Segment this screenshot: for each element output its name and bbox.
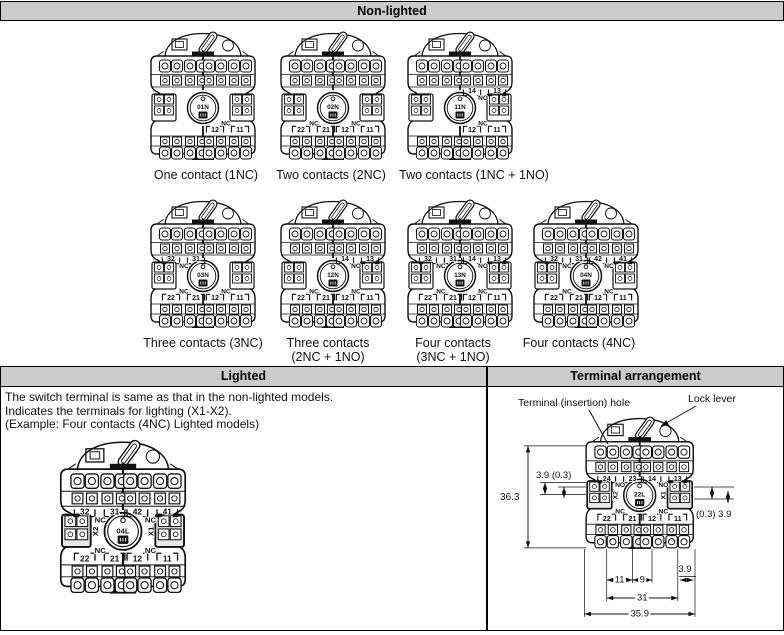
svg-text:23: 23	[628, 474, 636, 483]
caption-line: Four contacts (4NC)	[484, 337, 674, 351]
svg-text:12: 12	[133, 553, 143, 563]
svg-text:21: 21	[110, 553, 120, 563]
svg-text:NC: NC	[562, 289, 572, 296]
switch-figure-13N: 13N32311413NCNO22211211NCNC	[404, 198, 516, 330]
svg-text:NC: NC	[604, 263, 614, 270]
svg-text:11: 11	[493, 127, 501, 134]
svg-text:11: 11	[493, 295, 501, 302]
datasheet-page: Non-lighted 01N1211NCOne contact (1NC)02…	[0, 0, 784, 635]
svg-text:13: 13	[366, 256, 374, 263]
svg-text:12: 12	[468, 127, 476, 134]
switch-diagram-13N: 13N32311413NCNO22211211NCNC	[404, 198, 516, 330]
svg-text:NC: NC	[478, 289, 488, 296]
figure-caption-04N: Four contacts (4NC)	[484, 337, 674, 351]
svg-text:NC: NC	[221, 289, 231, 296]
svg-text:32: 32	[167, 256, 175, 263]
lighted-figure: X2X104L32314241NCNC22211211NCNC	[56, 438, 190, 601]
switch-figure-01N: 01N1211NC	[147, 30, 259, 162]
svg-text:X2: X2	[612, 491, 619, 499]
svg-text:12: 12	[341, 127, 349, 134]
svg-text:12: 12	[341, 295, 349, 302]
svg-text:22: 22	[424, 295, 432, 302]
svg-text:14: 14	[341, 256, 349, 263]
dimension-value: 9	[640, 575, 645, 586]
section-title-terminal-arrangement: Terminal arrangement	[570, 369, 700, 383]
svg-text:04N: 04N	[580, 272, 592, 279]
svg-text:31: 31	[192, 256, 200, 263]
svg-text:32: 32	[424, 256, 432, 263]
terminal-arrangement-drawing: X2X122L24231413NONO22211211NCNCTerminal …	[488, 387, 784, 630]
svg-text:04L: 04L	[116, 526, 129, 535]
dimension-value: 35.9	[631, 609, 650, 620]
dimension-value: 3.9	[678, 564, 691, 575]
svg-text:21: 21	[449, 295, 457, 302]
svg-text:41: 41	[163, 507, 173, 517]
svg-text:11: 11	[236, 295, 244, 302]
dimension-value: 36.3	[500, 492, 520, 503]
svg-text:14: 14	[468, 88, 476, 95]
svg-text:NO: NO	[351, 263, 361, 270]
switch-diagram-04L: X2X104L32314241NCNC22211211NCNC	[56, 438, 190, 596]
svg-text:24: 24	[603, 474, 611, 483]
switch-diagram-02N: 02N22211211NCNC	[277, 30, 389, 162]
svg-text:14: 14	[468, 256, 476, 263]
svg-text:22L: 22L	[634, 491, 645, 498]
svg-text:32: 32	[80, 507, 90, 517]
note-line: (Example: Four contacts (4NC) Lighted mo…	[5, 418, 333, 432]
terminal-arrangement-panel: Terminal arrangement X2X122L24231413NONO…	[487, 366, 784, 631]
lighted-notes: The switch terminal is same as that in t…	[5, 391, 333, 432]
svg-text:13: 13	[674, 474, 682, 483]
svg-text:12: 12	[468, 295, 476, 302]
svg-text:22: 22	[297, 295, 305, 302]
svg-text:11: 11	[236, 127, 244, 134]
switch-diagram-11N: 11N1413NO1211NC	[404, 30, 516, 162]
non-lighted-figures: 01N1211NCOne contact (1NC)02N22211211NCN…	[0, 0, 784, 366]
switch-figure-03N: 03N3231NC22211211NCNC	[147, 198, 259, 330]
svg-text:22: 22	[550, 295, 558, 302]
svg-text:NC: NC	[615, 508, 625, 515]
section-header-terminal-arrangement: Terminal arrangement	[488, 367, 783, 387]
svg-text:NC: NC	[478, 121, 488, 128]
switch-diagram-03N: 03N3231NC22211211NCNC	[147, 198, 259, 330]
svg-text:12N: 12N	[327, 272, 339, 279]
dimension-value: 3.9 (0.3)	[536, 470, 571, 481]
svg-text:13: 13	[493, 256, 501, 263]
svg-text:NC: NC	[221, 121, 231, 128]
svg-text:NC: NC	[145, 515, 157, 524]
section-title-lighted: Lighted	[221, 369, 266, 383]
svg-text:21: 21	[575, 295, 583, 302]
svg-text:22: 22	[167, 295, 175, 302]
svg-text:NC: NC	[604, 289, 614, 296]
switch-figure-11N: 11N1413NO1211NC	[404, 30, 516, 162]
svg-text:NC: NC	[659, 508, 669, 515]
switch-diagram-12N: 12N1413NO22211211NCNC	[277, 198, 389, 330]
svg-text:31: 31	[110, 507, 120, 517]
svg-text:11: 11	[366, 127, 374, 134]
svg-text:12: 12	[594, 295, 602, 302]
svg-text:NC: NC	[351, 289, 361, 296]
svg-text:12: 12	[648, 514, 656, 523]
note-line: The switch terminal is same as that in t…	[5, 391, 333, 405]
callout-terminal-hole: Terminal (insertion) hole	[518, 397, 630, 409]
svg-text:31: 31	[449, 256, 457, 263]
dimension-value: 11	[615, 575, 625, 586]
terminal-arrangement-figure: X2X122L24231413NONO22211211NCNCTerminal …	[488, 387, 784, 635]
svg-text:11: 11	[366, 295, 374, 302]
caption-line: (3NC + 1NO)	[358, 351, 548, 365]
svg-text:32: 32	[550, 256, 558, 263]
svg-text:14: 14	[648, 474, 656, 483]
svg-text:21: 21	[322, 295, 330, 302]
svg-text:41: 41	[619, 256, 627, 263]
svg-text:X1: X1	[147, 526, 156, 536]
svg-text:NC: NC	[562, 263, 572, 270]
svg-text:22: 22	[297, 127, 305, 134]
dimension-value: (0.3) 3.9	[696, 509, 731, 520]
svg-text:X1: X1	[660, 491, 667, 499]
figure-caption-11N: Two contacts (1NC + 1NO)	[379, 169, 569, 183]
svg-text:NC: NC	[179, 289, 189, 296]
svg-text:NC: NC	[436, 289, 446, 296]
switch-diagram-04N: 04N32314241NCNC22211211NCNC	[530, 198, 642, 330]
svg-text:12: 12	[211, 295, 219, 302]
svg-text:NC: NC	[179, 263, 189, 270]
svg-text:NC: NC	[351, 121, 361, 128]
svg-text:42: 42	[594, 256, 602, 263]
callout-lock-lever: Lock lever	[688, 393, 736, 405]
section-header-lighted: Lighted	[1, 367, 486, 387]
switch-figure-12N: 12N1413NO22211211NCNC	[277, 198, 389, 330]
svg-text:11N: 11N	[454, 104, 466, 111]
svg-text:21: 21	[192, 295, 200, 302]
svg-text:13N: 13N	[454, 272, 466, 279]
svg-text:02N: 02N	[327, 104, 339, 111]
svg-text:11: 11	[619, 295, 627, 302]
svg-text:22: 22	[603, 514, 611, 523]
svg-text:11: 11	[163, 553, 172, 563]
svg-text:NO: NO	[615, 482, 625, 489]
svg-text:NC: NC	[436, 263, 446, 270]
svg-text:31: 31	[575, 256, 583, 263]
svg-text:42: 42	[133, 507, 143, 517]
svg-text:NC: NC	[95, 515, 107, 524]
svg-text:NO: NO	[478, 263, 488, 270]
svg-text:X2: X2	[91, 526, 100, 536]
svg-text:01N: 01N	[197, 104, 209, 111]
switch-figure-02N: 02N22211211NCNC	[277, 30, 389, 162]
svg-text:11: 11	[674, 514, 682, 523]
svg-text:03N: 03N	[197, 272, 209, 279]
svg-text:12: 12	[211, 127, 219, 134]
switch-diagram-01N: 01N1211NC	[147, 30, 259, 162]
svg-text:21: 21	[322, 127, 330, 134]
svg-text:13: 13	[493, 88, 501, 95]
svg-text:NC: NC	[145, 546, 157, 555]
svg-text:NC: NC	[309, 289, 319, 296]
svg-text:NC: NC	[309, 121, 319, 128]
dimension-value: 31	[637, 593, 648, 604]
svg-text:NO: NO	[658, 482, 668, 489]
switch-figure-04N: 04N32314241NCNC22211211NCNC	[530, 198, 642, 330]
svg-text:22: 22	[80, 553, 90, 563]
caption-line: Two contacts (1NC + 1NO)	[379, 169, 569, 183]
note-line: Indicates the terminals for lighting (X1…	[5, 405, 333, 419]
lighted-panel: Lighted The switch terminal is same as t…	[0, 366, 487, 631]
svg-text:21: 21	[628, 514, 636, 523]
svg-text:NC: NC	[95, 546, 107, 555]
svg-text:NO: NO	[478, 95, 488, 102]
